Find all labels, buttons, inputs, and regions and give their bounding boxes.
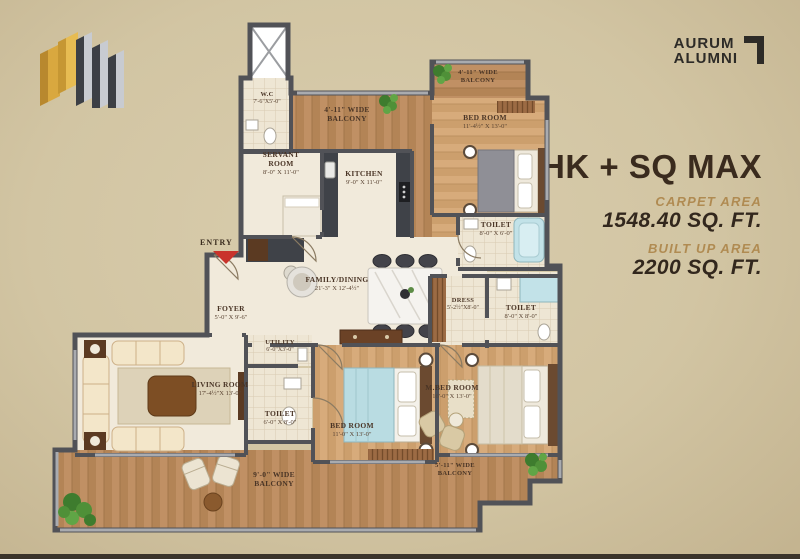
entry-label: ENTRY (200, 238, 233, 247)
page-background: AURUM ALUMNI 3BHK + SQ MAX CARPET AREA 1… (0, 0, 800, 559)
bottom-edge-strip (0, 554, 800, 559)
floor-plan (0, 0, 800, 559)
